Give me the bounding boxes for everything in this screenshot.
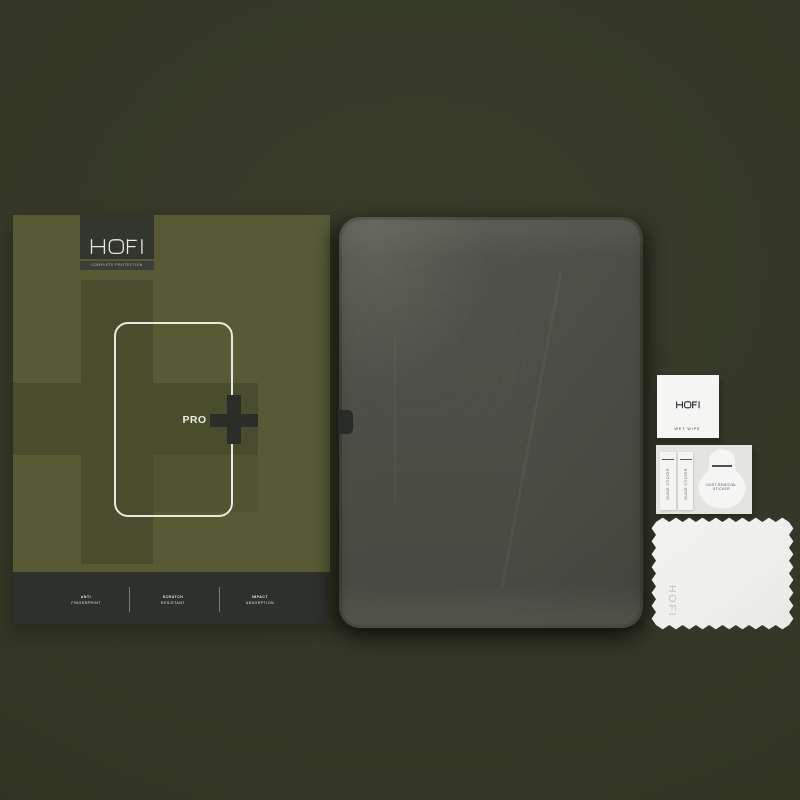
svg-text:HOFI: HOFI [666, 585, 678, 617]
